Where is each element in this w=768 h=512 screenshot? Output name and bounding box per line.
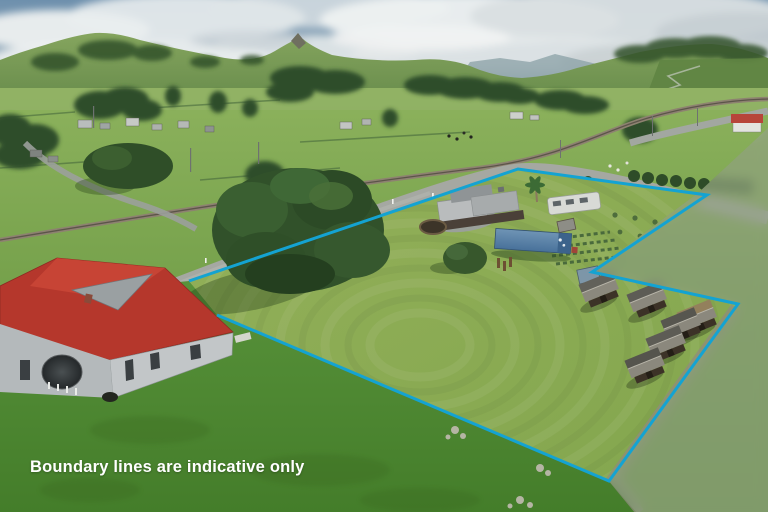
caption: Boundary lines are indicative only (30, 458, 305, 477)
aerial-photo: Boundary lines are indicative only (0, 0, 768, 512)
boundary-line (189, 169, 738, 481)
overlay-layer (0, 0, 768, 512)
